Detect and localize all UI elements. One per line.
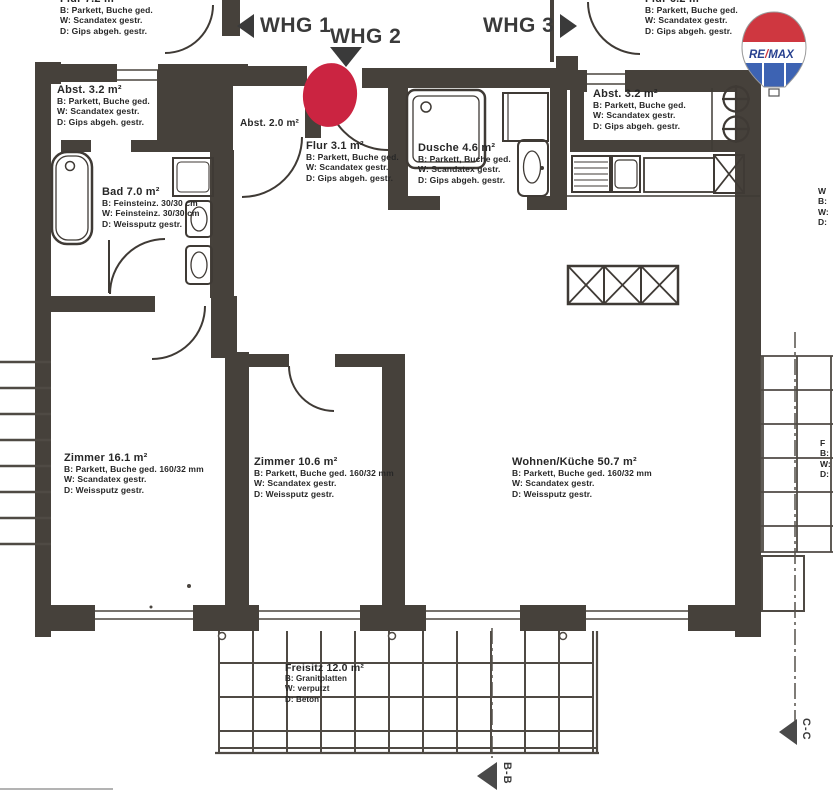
freisitz-grid [215,631,599,753]
room-label-freisitz: Freisitz 12.0 m² B: Granitplatten W: ver… [285,662,364,705]
edge-line: W [818,186,829,196]
room-line: D: Beton [285,695,364,705]
whg1-text: WHG 1 [260,14,331,38]
room-title: Zimmer 16.1 m² [64,452,204,464]
room-title: Zimmer 10.6 m² [254,456,394,468]
room-line: D: Gips abgeh. gestr. [306,173,399,183]
room-line: W: Scandatex gestr. [593,110,686,120]
room-line: D: Gips abgeh. gestr. [593,121,686,131]
kitchen-fixtures [567,155,760,304]
whg3-text: WHG 3 [483,14,554,38]
room-label-flur-upper-left: Flur 7.2 m² B: Parkett, Buche ged. W: Sc… [60,0,153,36]
section-marker-b: B-B [501,762,513,785]
left-arrow-icon [237,14,254,38]
scan-artifacts [0,584,191,789]
room-line: W: Scandatex gestr. [645,15,738,25]
room-line: B: Feinsteinz. 30/30 cm [102,198,200,208]
edge-line: B: [818,196,829,206]
room-line: W: Scandatex gestr. [60,15,153,25]
room-line: B: Parkett, Buche ged. [418,154,511,164]
room-label-dusche: Dusche 4.6 m² B: Parkett, Buche ged. W: … [418,142,511,185]
whg1-label: WHG 1 [237,14,331,38]
room-line: B: Granitplatten [285,674,364,684]
room-line: D: Weissputz gestr. [254,489,394,499]
room-label-abst-right: Abst. 3.2 m² B: Parkett, Buche ged. W: S… [593,88,686,131]
bathtub-drain-icon [66,162,75,171]
room-title: Abst. 3.2 m² [57,84,150,96]
whg2-label: WHG 2 [330,25,401,49]
section-marker-c: C-C [800,718,812,741]
room-label-abst-left: Abst. 3.2 m² B: Parkett, Buche ged. W: S… [57,84,150,127]
room-line: W: Scandatex gestr. [64,474,204,484]
neighbor-terrace-grid [761,356,833,611]
section-b-arrow-icon [477,762,497,790]
room-title: Abst. 2.0 m² [240,118,299,130]
whg3-label: WHG 3 [483,14,577,38]
room-label-zimmer-2: Zimmer 10.6 m² B: Parkett, Buche ged. 16… [254,456,394,499]
room-line: B: Parkett, Buche ged. [645,5,738,15]
room-line: W: Feinsteinz. 30/30 cm [102,208,200,218]
balloon-basket-icon [769,89,779,96]
room-line: W: Scandatex gestr. [306,162,399,172]
remax-logo-text: RE/MAX [749,49,795,61]
room-line: W: Scandatex gestr. [57,106,150,116]
room-title: Abst. 3.2 m² [593,88,686,100]
edge-line: D: [820,469,831,479]
floor-plan-page: RE/MAX WHG 1 WHG 2 WHG 3 Flur 7.2 m² B: … [0,0,833,800]
room-title: Bad 7.0 m² [102,186,200,198]
edge-line: D: [818,217,829,227]
room-line: D: Gips abgeh. gestr. [60,26,153,36]
room-label-flur: Flur 3.1 m² B: Parkett, Buche ged. W: Sc… [306,140,399,183]
room-line: B: Parkett, Buche ged. 160/32 mm [254,468,394,478]
room-line: B: Parkett, Buche ged. 160/32 mm [512,468,652,478]
room-line: D: Weissputz gestr. [64,485,204,495]
room-line: B: Parkett, Buche ged. 160/32 mm [64,464,204,474]
room-line: B: Parkett, Buche ged. [60,5,153,15]
room-line: W: Scandatex gestr. [254,478,394,488]
room-line: W: Scandatex gestr. [512,478,652,488]
edge-label-right-1: W B: W: D: [818,186,829,228]
room-line: D: Gips abgeh. gestr. [645,26,738,36]
room-label-abst-2: Abst. 2.0 m² [240,118,299,130]
room-label-wohnen-kueche: Wohnen/Küche 50.7 m² B: Parkett, Buche g… [512,456,652,499]
room-label-flur-upper-right: Flur 6.2 m² B: Parkett, Buche ged. W: Sc… [645,0,738,36]
room-title: Freisitz 12.0 m² [285,662,364,674]
room-line: B: Parkett, Buche ged. [593,100,686,110]
room-title: Wohnen/Küche 50.7 m² [512,456,652,468]
edge-line: W: [818,207,829,217]
room-line: D: Weissputz gestr. [102,219,200,229]
edge-label-right-2: F B: W: D: [820,438,831,480]
room-line: B: Parkett, Buche ged. [57,96,150,106]
edge-line: F [820,438,831,448]
room-line: W: Scandatex gestr. [418,164,511,174]
section-c-arrow-icon [779,719,797,745]
edge-line: B: [820,448,831,458]
room-line: D: Gips abgeh. gestr. [418,175,511,185]
room-title: Flur 3.1 m² [306,140,399,152]
room-line: B: Parkett, Buche ged. [306,152,399,162]
room-title: Dusche 4.6 m² [418,142,511,154]
edge-line: W: [820,459,831,469]
room-label-zimmer-1: Zimmer 16.1 m² B: Parkett, Buche ged. 16… [64,452,204,495]
whg2-text: WHG 2 [330,25,401,49]
shower-drain-icon [421,102,431,112]
room-line: D: Gips abgeh. gestr. [57,117,150,127]
room-line: W: verputzt [285,684,364,694]
room-label-bad: Bad 7.0 m² B: Feinsteinz. 30/30 cm W: Fe… [102,186,200,229]
right-arrow-icon [560,14,577,38]
room-line: D: Weissputz gestr. [512,489,652,499]
